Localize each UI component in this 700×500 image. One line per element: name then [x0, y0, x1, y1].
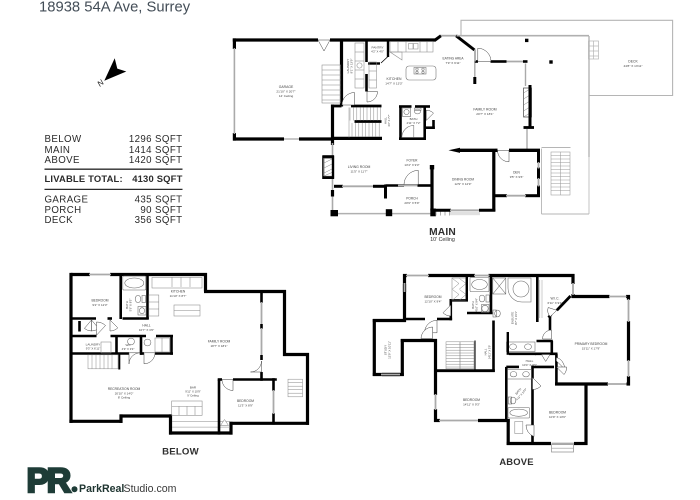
svg-text:BELOW: BELOW [45, 134, 82, 145]
svg-text:9' Ceiling: 9' Ceiling [187, 394, 199, 398]
svg-text:PR: PR [27, 462, 71, 500]
svg-text:ENSUITE: ENSUITE [511, 312, 515, 325]
svg-text:10'4" X 3'5": 10'4" X 3'5" [522, 363, 537, 367]
svg-text:18'7" X 18'1": 18'7" X 18'1" [211, 344, 228, 348]
svg-text:14'11" X 9'3": 14'11" X 9'3" [463, 402, 480, 406]
svg-text:BELOW: BELOW [162, 447, 199, 458]
svg-text:11'10" X 8'7": 11'10" X 8'7" [170, 294, 187, 298]
svg-text:4130 SQFT: 4130 SQFT [132, 173, 182, 184]
svg-text:LIVING ROOM: LIVING ROOM [348, 165, 371, 169]
svg-text:4'11" X 7'2": 4'11" X 7'2" [406, 121, 420, 125]
svg-text:ABOVE: ABOVE [45, 155, 81, 166]
svg-text:14'7" X 13'3": 14'7" X 13'3" [385, 82, 402, 86]
svg-text:9'2" X 12'3": 9'2" X 12'3" [92, 303, 107, 307]
svg-text:7'9" X 9'11": 7'9" X 9'11" [445, 61, 460, 65]
svg-text:44'8" X 13'11": 44'8" X 13'11" [624, 64, 643, 68]
svg-text:1296 SQFT: 1296 SQFT [129, 134, 183, 145]
svg-text:DECK: DECK [628, 60, 638, 64]
svg-text:HALL: HALL [484, 348, 488, 355]
svg-text:13'4" X 9'3": 13'4" X 9'3" [404, 163, 419, 167]
svg-text:10' Ceiling: 10' Ceiling [430, 237, 455, 243]
svg-text:21'10" X 20'7": 21'10" X 20'7" [276, 90, 295, 94]
svg-text:1414 SQFT: 1414 SQFT [129, 145, 183, 156]
svg-text:FAMILY ROOM: FAMILY ROOM [473, 108, 496, 112]
svg-text:4'2" X 7'7": 4'2" X 7'7" [387, 114, 391, 126]
svg-text:8'1" X 13'9": 8'1" X 13'9" [350, 59, 354, 74]
svg-text:4'10" X 9'4": 4'10" X 9'4" [475, 298, 479, 312]
svg-text:9'7" X 15'1": 9'7" X 15'1" [514, 311, 518, 325]
svg-text:6'11" X 9'4": 6'11" X 9'4" [547, 301, 562, 305]
svg-text:BATH: BATH [471, 301, 475, 309]
svg-text:12'10" X 9'4": 12'10" X 9'4" [425, 299, 442, 303]
svg-text:11'3" X 8'9": 11'3" X 8'9" [238, 403, 253, 407]
svg-text:12'9" X 12'9": 12'9" X 12'9" [455, 182, 472, 186]
svg-text:10'9" X 13'6": 10'9" X 13'6" [549, 415, 566, 419]
svg-text:15'11" X 17'9": 15'11" X 17'9" [582, 346, 600, 350]
svg-text:KITCHEN: KITCHEN [387, 77, 402, 81]
svg-text:ParkReal: ParkReal [79, 483, 124, 495]
svg-text:5'6" X 8'5": 5'6" X 8'5" [129, 299, 133, 312]
svg-text:MAIN: MAIN [45, 145, 71, 156]
svg-text:18938 54A Ave, Surrey: 18938 54A Ave, Surrey [39, 0, 191, 16]
svg-text:11'5" X 11'7": 11'5" X 11'7" [350, 170, 367, 174]
svg-text:14'11" X 3'9": 14'11" X 3'9" [487, 345, 491, 360]
svg-text:GARAGE: GARAGE [279, 85, 294, 89]
svg-text:LIVABLE TOTAL:: LIVABLE TOTAL: [45, 173, 123, 184]
svg-text:10'7" X 3'6": 10'7" X 3'6" [139, 328, 154, 332]
svg-text:356 SQFT: 356 SQFT [135, 215, 183, 226]
svg-text:Studio.com: Studio.com [124, 483, 177, 495]
svg-text:8' Ceiling: 8' Ceiling [118, 396, 131, 400]
svg-text:ABOVE: ABOVE [499, 456, 533, 467]
svg-text:DECK: DECK [45, 215, 74, 226]
svg-text:4'9" X 3'3": 4'9" X 3'3" [122, 347, 135, 351]
svg-text:20'9" X 5'9": 20'9" X 5'9" [404, 201, 419, 205]
svg-text:14' Ceiling: 14' Ceiling [279, 94, 294, 98]
svg-text:1420 SQFT: 1420 SQFT [129, 155, 183, 166]
svg-text:12'9" X 10'11": 12'9" X 10'11" [387, 341, 391, 359]
svg-text:HALL: HALL [384, 116, 388, 124]
svg-text:4'2" X 4'0": 4'2" X 4'0" [371, 50, 384, 54]
svg-text:20'7" X 18'1": 20'7" X 18'1" [476, 112, 493, 116]
svg-text:9'3" X 6'11": 9'3" X 6'11" [86, 347, 101, 351]
svg-text:EATING AREA: EATING AREA [442, 57, 464, 61]
svg-text:9'5" X 9'6": 9'5" X 9'6" [510, 175, 524, 179]
